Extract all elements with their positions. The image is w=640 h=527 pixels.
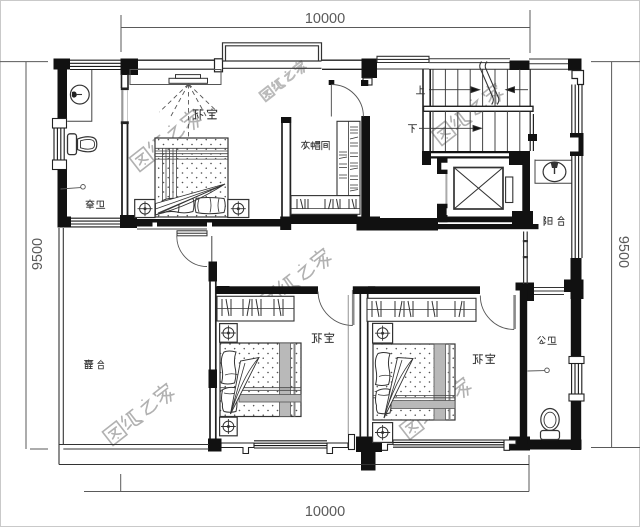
svg-text:9500: 9500 bbox=[615, 236, 631, 268]
svg-text:10000: 10000 bbox=[305, 11, 345, 27]
svg-text:10000: 10000 bbox=[305, 504, 345, 520]
svg-text:9500: 9500 bbox=[30, 238, 46, 270]
